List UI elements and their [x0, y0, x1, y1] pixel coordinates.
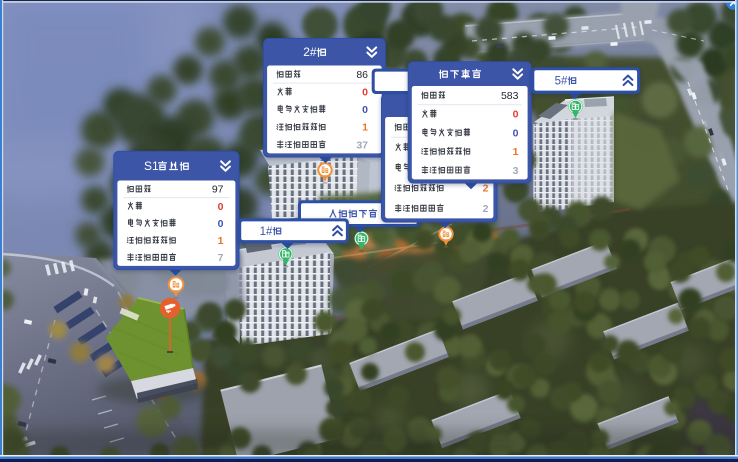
svg-text:1: 1: [218, 235, 224, 247]
svg-text:37: 37: [356, 139, 368, 151]
svg-text:1: 1: [513, 146, 519, 158]
svg-text:0: 0: [362, 104, 368, 116]
svg-text:5#: 5#: [555, 76, 568, 88]
svg-text:0: 0: [362, 87, 368, 99]
svg-text:0: 0: [218, 218, 224, 230]
svg-text:1: 1: [362, 122, 368, 134]
svg-text:7: 7: [218, 252, 224, 264]
svg-text:97: 97: [212, 184, 224, 196]
svg-text:0: 0: [218, 201, 224, 213]
svg-text:2#: 2#: [303, 45, 317, 59]
svg-text:1#: 1#: [260, 226, 273, 238]
svg-text:2: 2: [483, 183, 489, 195]
svg-text:S1: S1: [144, 159, 159, 173]
svg-text:0: 0: [513, 109, 519, 121]
svg-text:2: 2: [483, 203, 489, 215]
svg-text:86: 86: [356, 69, 368, 81]
svg-text:3: 3: [513, 165, 519, 177]
svg-text:0: 0: [513, 127, 519, 139]
svg-text:583: 583: [501, 90, 519, 102]
